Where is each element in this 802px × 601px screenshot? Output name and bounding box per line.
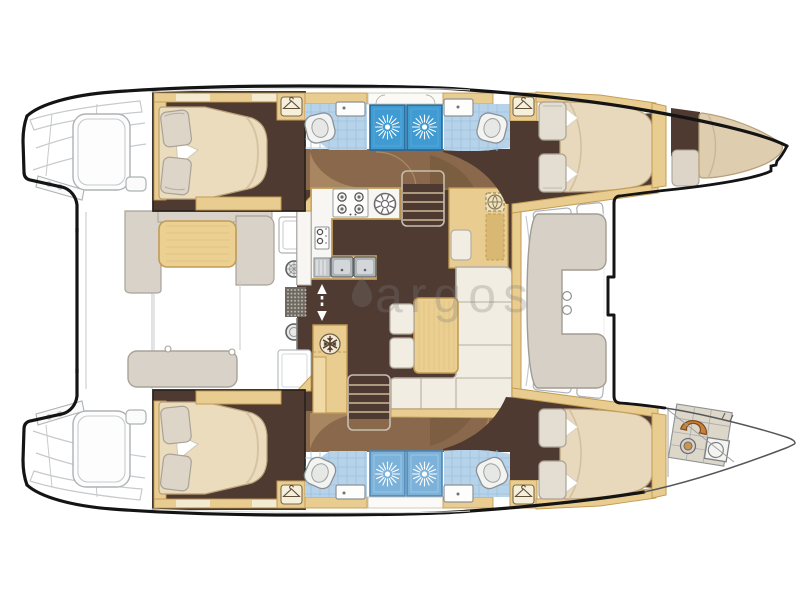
svg-text:argos: argos bbox=[375, 267, 535, 323]
